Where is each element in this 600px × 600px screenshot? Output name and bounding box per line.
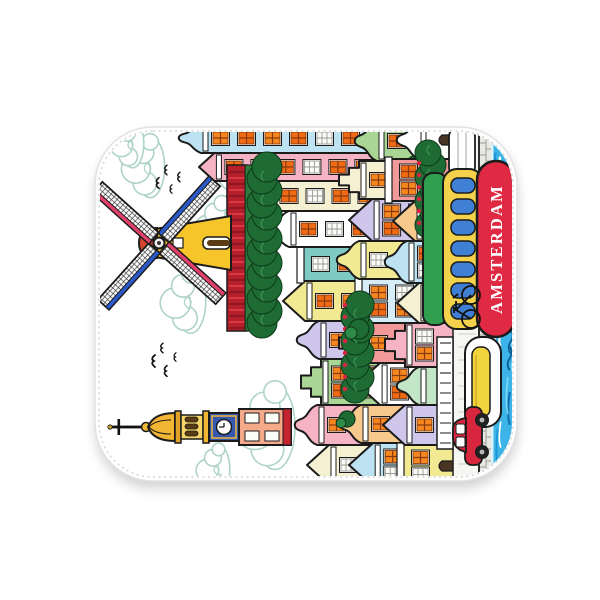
blanket-product-image: AMSTERDAM [0,0,600,600]
boat-window [451,199,475,214]
product-root: AMSTERDAM [92,118,527,493]
boat-window [451,241,475,256]
railing [437,337,453,449]
boat-window [451,178,475,193]
boat-window [451,220,475,235]
hedge [341,291,374,403]
door [439,461,454,471]
boat-window [451,262,475,277]
hedge [247,152,282,338]
product-photo: AMSTERDAM [0,0,600,600]
amsterdam-banner-text: AMSTERDAM [487,184,506,314]
